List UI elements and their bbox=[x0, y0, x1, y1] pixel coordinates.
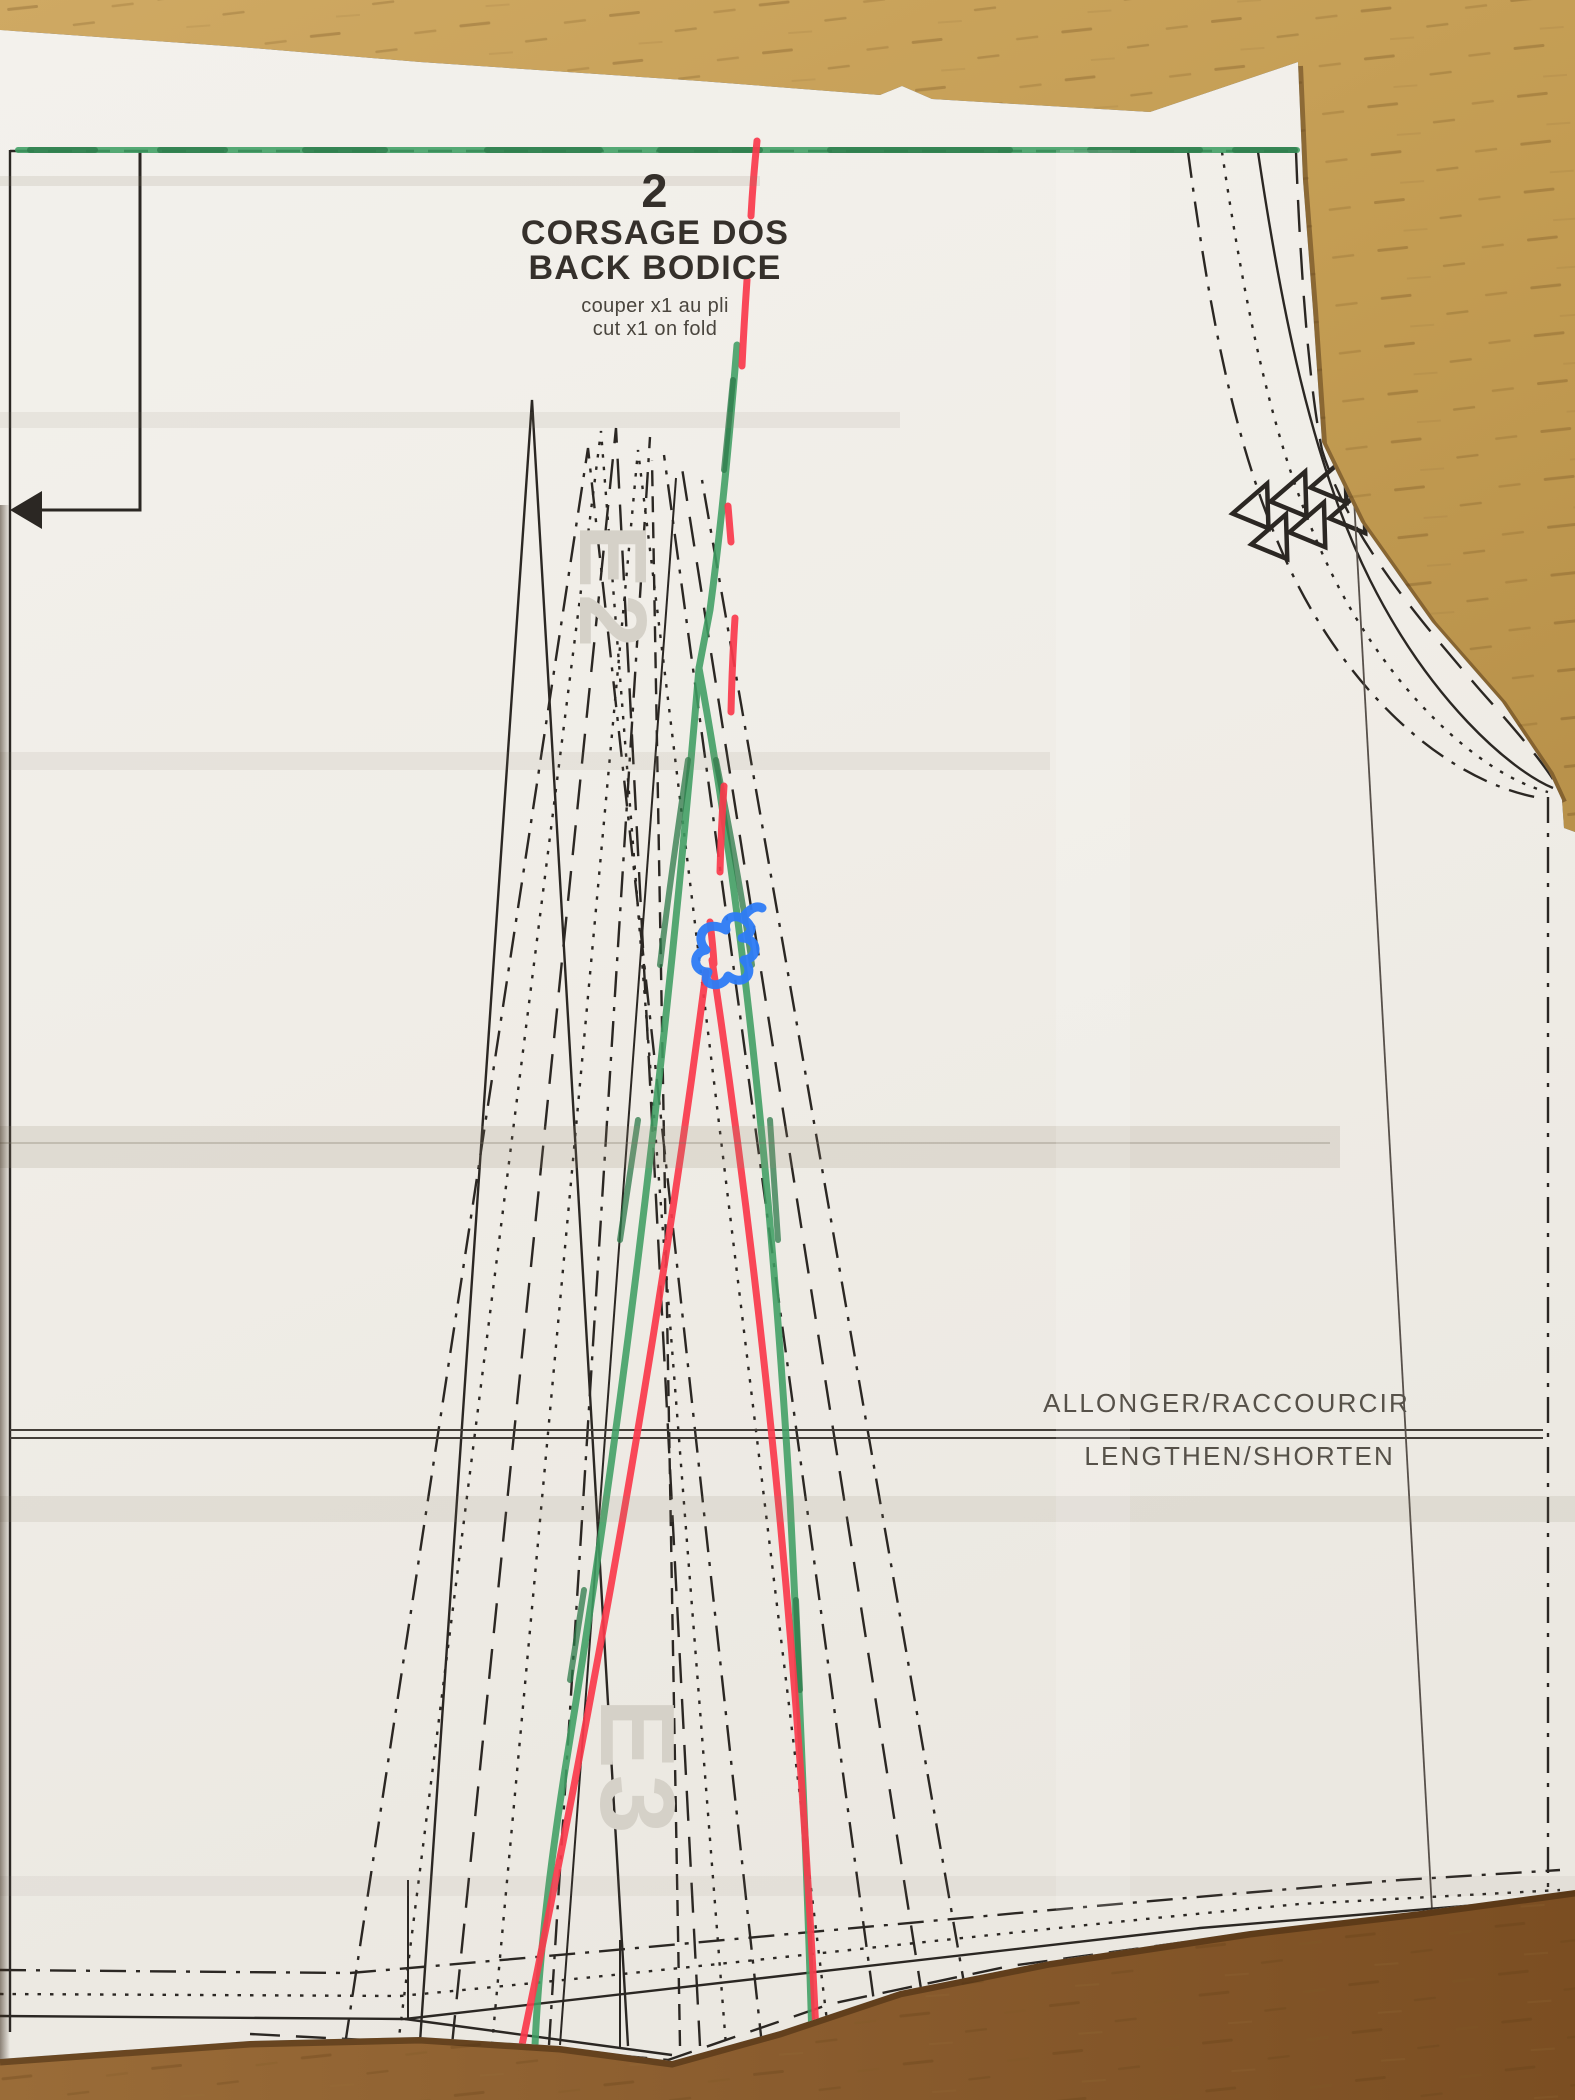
piece-title-en: BACK BODICE bbox=[430, 251, 880, 286]
photo-of-sewing-pattern: 2 CORSAGE DOS BACK BODICE couper x1 au p… bbox=[0, 0, 1575, 2100]
adjustment-label-en: LENGTHEN/SHORTEN bbox=[975, 1441, 1395, 1472]
adjustment-label-fr: ALLONGER/RACCOURCIR bbox=[990, 1388, 1410, 1419]
piece-title-fr: CORSAGE DOS bbox=[430, 216, 880, 251]
watermark-e2: E2 bbox=[557, 524, 667, 653]
cutting-instruction-fr: couper x1 au pli bbox=[430, 295, 880, 318]
cutting-instruction-en: cut x1 on fold bbox=[430, 318, 880, 341]
piece-title-block: 2 CORSAGE DOS BACK BODICE couper x1 au p… bbox=[430, 166, 880, 341]
watermark-e3: E3 bbox=[576, 1698, 697, 1840]
piece-number: 2 bbox=[430, 166, 880, 216]
